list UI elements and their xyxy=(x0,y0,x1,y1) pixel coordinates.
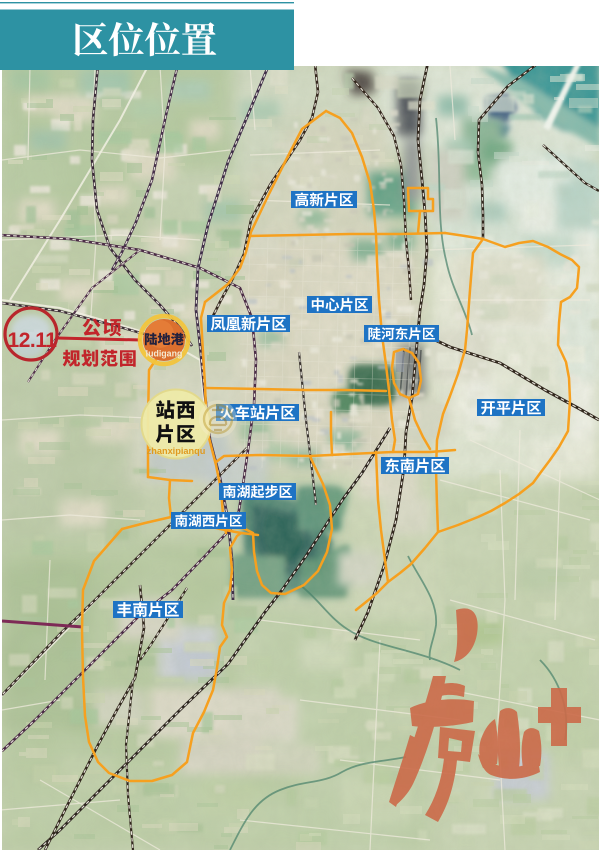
svg-text:zhanxipianqu: zhanxipianqu xyxy=(147,446,206,456)
svg-text:ludigang: ludigang xyxy=(146,349,183,359)
svg-text:12.11: 12.11 xyxy=(8,329,58,352)
